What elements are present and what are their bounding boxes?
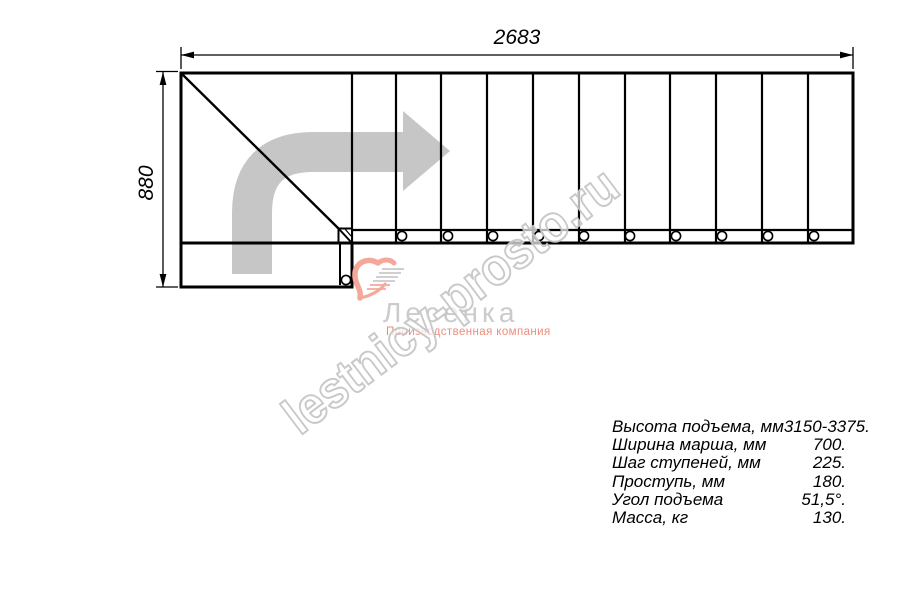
spec-row-mass: Масса, кг 130. (612, 509, 846, 527)
spec-label: Шаг ступеней, мм (612, 454, 761, 472)
fastener-circles (341, 231, 818, 284)
stair-plan-page: 2683 880 Лесенка Производственная компан… (0, 0, 900, 600)
spec-row-step-rise: Шаг ступеней, мм 225. (612, 454, 846, 472)
specifications-list: Высота подъема, мм 3150-3375. Ширина мар… (612, 418, 846, 527)
height-dimension-label: 880 (135, 165, 159, 200)
dimension-width (181, 47, 853, 69)
width-dimension-label: 2683 (494, 26, 541, 50)
spec-label: Высота подъема, мм (612, 418, 784, 436)
spec-value: 180. (813, 473, 846, 491)
spec-label: Угол подъема (612, 491, 723, 509)
tread-lines (352, 74, 852, 286)
company-logo-name: Лесенка (383, 297, 518, 329)
spec-value: 225. (813, 454, 846, 472)
spec-row-flight-width: Ширина марша, мм 700. (612, 436, 846, 454)
spec-row-tread: Проступь, мм 180. (612, 473, 846, 491)
spec-row-angle: Угол подъема 51,5°. (612, 491, 846, 509)
spec-value: 3150-3375. (784, 418, 870, 436)
spec-value: 51,5°. (801, 491, 846, 509)
company-logo-tagline: Производственная компания (386, 326, 551, 338)
joint-hatch (339, 229, 353, 243)
spec-label: Ширина марша, мм (612, 436, 766, 454)
dimension-height (156, 72, 178, 288)
spec-value: 130. (813, 509, 846, 527)
spec-label: Проступь, мм (612, 473, 725, 491)
spec-label: Масса, кг (612, 509, 688, 527)
spec-row-height: Высота подъема, мм 3150-3375. (612, 418, 846, 436)
spec-value: 700. (813, 436, 846, 454)
